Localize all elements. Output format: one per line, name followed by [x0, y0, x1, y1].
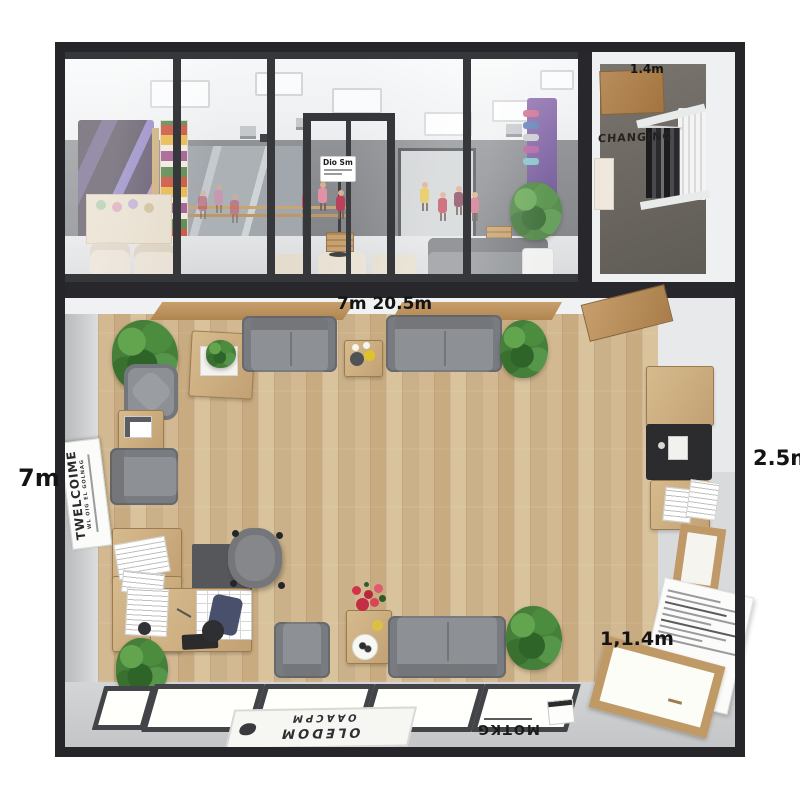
floorplan-render: Dio Sm 1.4m CHANGING	[0, 0, 800, 800]
left-dimension-label: 7m	[18, 464, 60, 492]
right-dimension-label: 2.5m	[753, 446, 800, 470]
inner-dimension-label: 1,1.4m	[600, 628, 674, 650]
top-dimension-label: 7m 20.5m	[337, 294, 432, 314]
